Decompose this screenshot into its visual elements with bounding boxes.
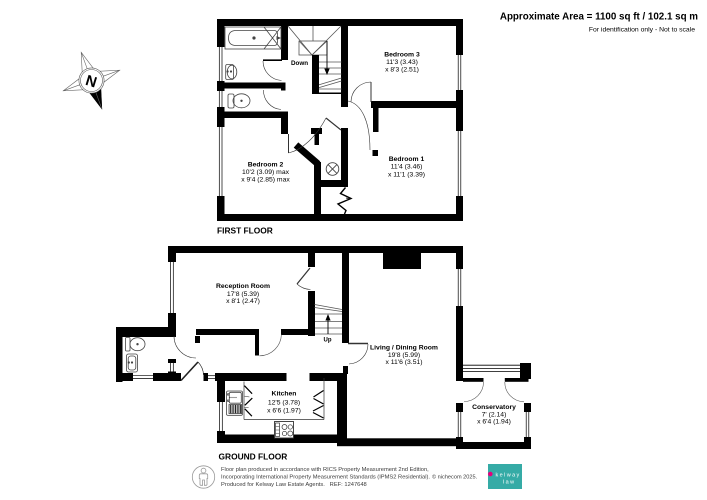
svg-text:Bedroom 1: Bedroom 1 <box>389 156 425 163</box>
svg-text:Conservatory: Conservatory <box>472 404 516 411</box>
svg-text:Kitchen: Kitchen <box>272 391 297 398</box>
svg-text:x 8'1 (2.47): x 8'1 (2.47) <box>226 298 260 305</box>
svg-text:x 6'6 (1.97): x 6'6 (1.97) <box>267 407 301 414</box>
svg-text:For identification only - Not: For identification only - Not to scale <box>589 26 695 33</box>
svg-text:GROUND FLOOR: GROUND FLOOR <box>219 452 288 462</box>
svg-text:x 11'6 (3.51): x 11'6 (3.51) <box>385 359 422 366</box>
svg-text:Incorporating International Pr: Incorporating International Property Mea… <box>221 474 430 480</box>
svg-text:Reception Room: Reception Room <box>216 283 270 290</box>
svg-text:Living / Dining Room: Living / Dining Room <box>370 344 438 351</box>
svg-text:7' (2.14): 7' (2.14) <box>482 411 507 418</box>
svg-text:© nichecom 2025.: © nichecom 2025. <box>432 473 478 480</box>
svg-text:Down: Down <box>291 60 308 67</box>
svg-text:law: law <box>503 479 515 485</box>
svg-text:11'3 (3.43): 11'3 (3.43) <box>386 59 418 66</box>
svg-text:Approximate Area = 1100 sq ft: Approximate Area = 1100 sq ft / 102.1 sq… <box>500 11 698 22</box>
svg-text:Bedroom 3: Bedroom 3 <box>384 51 420 58</box>
svg-text:x 9'4 (2.85) max: x 9'4 (2.85) max <box>241 177 290 184</box>
svg-text:17'8 (5.39): 17'8 (5.39) <box>227 291 259 298</box>
svg-text:Up: Up <box>324 337 332 343</box>
svg-text:12'5 (3.78): 12'5 (3.78) <box>268 399 300 406</box>
svg-text:x 11'1 (3.39): x 11'1 (3.39) <box>388 171 425 178</box>
svg-text:10'2 (3.09) max: 10'2 (3.09) max <box>242 169 290 176</box>
svg-text:Produced for Kelway Law Estate: Produced for Kelway Law Estate Agents. R… <box>221 482 367 488</box>
svg-text:Bedroom 2: Bedroom 2 <box>248 161 284 168</box>
svg-text:x 6'4 (1.94): x 6'4 (1.94) <box>477 418 511 425</box>
svg-text:FIRST FLOOR: FIRST FLOOR <box>217 226 273 236</box>
svg-text:11'4 (3.46): 11'4 (3.46) <box>391 164 423 171</box>
svg-text:Floor plan produced in accorda: Floor plan produced in accordance with R… <box>221 467 429 473</box>
svg-text:kelway: kelway <box>496 472 521 478</box>
svg-text:x 8'3 (2.51): x 8'3 (2.51) <box>385 67 419 74</box>
